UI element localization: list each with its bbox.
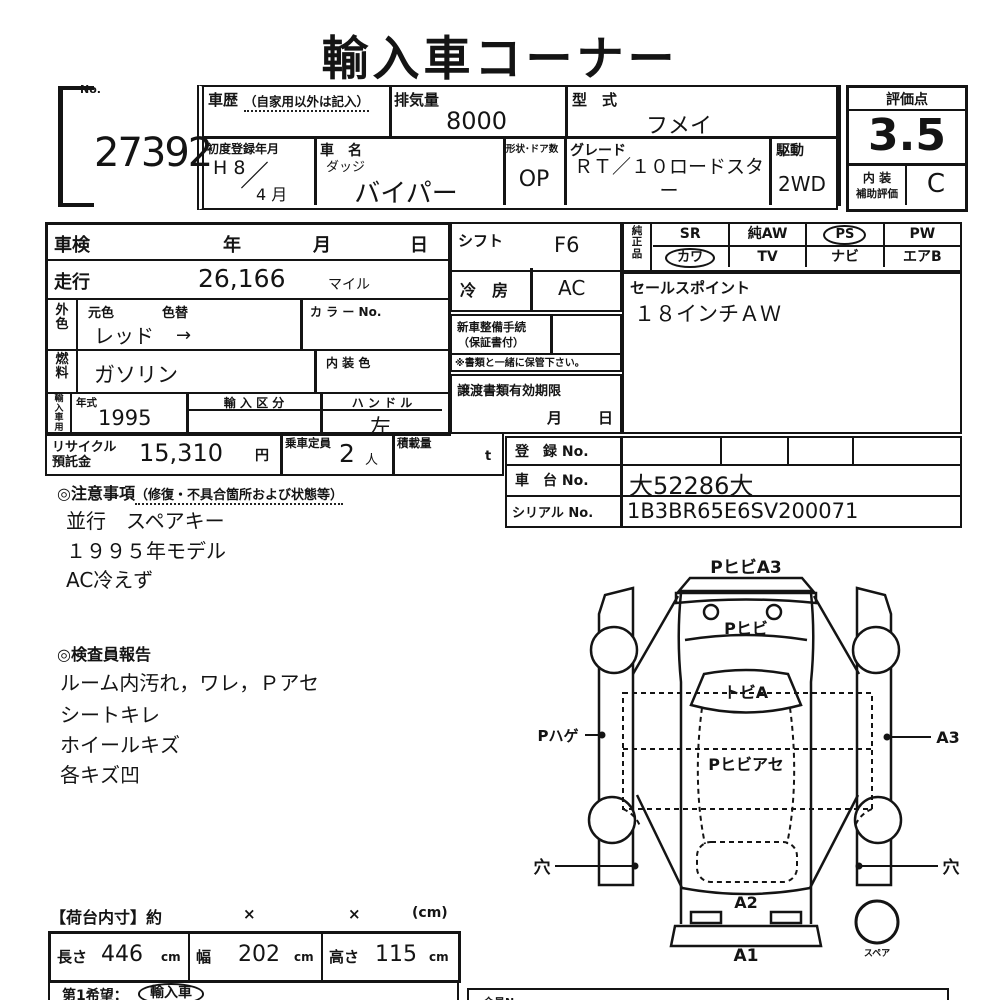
pointer-dot — [632, 863, 639, 870]
capacity-label: 乗車定員 — [285, 435, 331, 451]
original-color-label: 元色 — [88, 302, 114, 321]
recycle-label: 預託金 — [52, 451, 91, 470]
notes-heading-note: （修復・不具合箇所および状態等） — [135, 488, 343, 505]
cargo-height-label: 高さ — [329, 946, 359, 967]
history-label: 車歴 — [208, 89, 238, 110]
cabin-dashed-line — [698, 708, 705, 844]
damage-label-right-door: A3 — [936, 728, 960, 747]
note-item: 並行 スペアキー — [66, 505, 225, 534]
taillight — [691, 912, 721, 923]
sales-point-value: １８インチＡＷ — [634, 298, 781, 328]
shape-doors-value: OP — [504, 167, 564, 192]
divider-line — [300, 300, 303, 349]
pointer-dot — [856, 863, 863, 870]
pointer-dot — [599, 732, 606, 739]
registration-no-label: 登 録 No. — [515, 441, 589, 461]
front-fender-line — [814, 596, 859, 674]
shift-label: シフト — [458, 230, 503, 251]
front-bumper-band — [676, 593, 816, 603]
color-no-label: カ ラ ー No. — [310, 303, 381, 320]
warranty-label: （保証書付） — [458, 334, 524, 350]
equipment-item-kawa-circled: カワ — [665, 248, 715, 268]
lot-no-label: No. — [80, 83, 101, 96]
mileage-label: 走行 — [54, 268, 90, 294]
equipment-item-ps-circled: PS — [823, 225, 866, 245]
chassis-no-label: 車 台 No. — [515, 470, 589, 490]
sales-point-box: セールスポイント １８インチＡＷ — [622, 272, 962, 434]
equipment-item-airbag: エアB — [885, 247, 960, 268]
equipment-item-aw: 純AW — [730, 224, 807, 245]
cargo-width-value: 202 — [238, 942, 280, 967]
score-label: 評価点 — [849, 88, 965, 111]
keep-note-box: ※書類と一緒に保管下さい。 — [450, 351, 622, 372]
body-outline-left — [679, 593, 681, 924]
aircon-box: 冷 房 AC — [450, 268, 622, 312]
new-car-procedure-label: 新車整備手続 — [457, 319, 526, 335]
equipment-item-pw: PW — [885, 224, 960, 245]
month-label: 月 — [313, 231, 331, 257]
cargo-width-unit: cm — [294, 950, 314, 964]
front-right-wheel — [853, 627, 899, 673]
model-year-label: 年式 — [76, 395, 97, 410]
rear-bumper-shape — [671, 926, 821, 946]
rear-fender-line — [810, 795, 858, 888]
fuel-value: ガソリン — [94, 359, 178, 389]
recycle-box: リサイクル 預託金 15,310 円 乗車定員 2 人 積載量 t — [45, 432, 504, 476]
handle-label: ハ ン ド ル — [322, 394, 442, 411]
model-code-label: 型 式 — [572, 89, 617, 110]
inspector-item: シートキレ — [60, 699, 160, 728]
equipment-grid: 純正品 SR 純AW PS PW カワ TV ナビ エアB — [622, 222, 962, 272]
history-note: （自家用以外は記入） — [244, 91, 369, 112]
inspector-item: ルーム内汚れ，ワレ，Ｐアセ — [60, 667, 319, 696]
divider-line — [530, 268, 533, 310]
displacement-value: 8000 — [394, 107, 559, 135]
registration-table: 登 録 No. 車 台 No. 大52286大 シリアル No. 1B3BR65… — [505, 436, 962, 528]
cargo-height-value: 115 — [375, 942, 417, 967]
divider-line — [389, 87, 392, 136]
divider-line — [852, 438, 854, 464]
member-no-box: 会員No — [467, 988, 949, 1000]
transfer-day-label: 日 — [598, 407, 613, 428]
interior-color-label: 内 装 色 — [326, 354, 370, 371]
damage-label-right-hole: 穴 — [943, 857, 960, 878]
load-unit: t — [485, 449, 491, 464]
score-value: 3.5 — [849, 111, 965, 166]
interior-grade-label: 内 装 — [849, 169, 905, 186]
damage-label-left-door: Pハゲ — [538, 727, 579, 745]
serial-no-label: シリアル No. — [512, 502, 593, 521]
color-change-label: 色替 — [162, 302, 188, 321]
day-label: 日 — [410, 231, 428, 257]
vehicle-detail-table: 車検 年 月 日 走行 26,166 マイル 外色 元色 色替 レッド → カ … — [45, 222, 451, 436]
shaken-label: 車検 — [54, 231, 90, 257]
first-choice-box: 第1希望： 輸入車 — [48, 980, 459, 1000]
sales-point-label: セールスポイント — [630, 277, 750, 298]
equipment-item-navi: ナビ — [807, 247, 884, 268]
page-title: 輸入車コーナー — [0, 20, 1000, 89]
capacity-value: 2 — [339, 439, 355, 468]
pointer-dot — [884, 734, 891, 741]
damage-label-left-hole: 穴 — [534, 857, 551, 878]
notes-heading: ◎注意事項（修復・不具合箇所および状態等） — [57, 480, 343, 504]
year-label: 年 — [223, 231, 241, 257]
first-reg-month: 4 月 — [256, 181, 287, 205]
lot-bracket-line — [58, 86, 63, 207]
color-value: レッド — [94, 320, 154, 349]
fuel-group-label: 燃料 — [55, 353, 69, 381]
inspector-item: ホイールキズ — [60, 729, 180, 758]
member-no-label: 会員No — [483, 994, 522, 1000]
front-left-wheel — [591, 627, 637, 673]
divider-line — [392, 434, 395, 474]
drive-value: 2WD — [770, 172, 834, 196]
new-car-procedure-box: 新車整備手続 （保証書付） — [450, 314, 622, 355]
lot-bracket-line — [58, 203, 94, 207]
rear-left-wheel — [589, 797, 635, 843]
note-item: １９９５年モデル — [66, 535, 226, 564]
load-label: 積載量 — [397, 435, 432, 451]
cargo-heading: 【荷台内寸】約 — [50, 904, 162, 928]
chassis-no-value: 大52286大 — [629, 466, 753, 501]
divider-line — [787, 438, 789, 464]
first-choice-label: 第1希望： — [62, 985, 128, 1000]
model-code-value: フメイ — [584, 108, 774, 140]
floor-dashed-rect — [623, 693, 872, 809]
score-box: 評価点 3.5 内 装 補助評価 C — [846, 85, 968, 212]
import-class-label: 輸 入 区 分 — [188, 394, 320, 411]
note-item: AC冷えず — [66, 564, 153, 593]
rear-window-dashed — [697, 842, 797, 882]
divider-line — [720, 438, 722, 464]
notes-heading-label: ◎注意事項 — [57, 484, 135, 503]
damage-label-roof: Pヒビアセ — [708, 755, 783, 774]
cargo-height-unit: cm — [429, 950, 449, 964]
exterior-color-group-label: 外色 — [55, 304, 69, 332]
auction-sheet: 輸入車コーナー No. 27392 車歴 （自家用以外は記入） 排気量 8000… — [0, 0, 1000, 1000]
front-fender-line — [633, 596, 678, 674]
equipment-item-tv: TV — [730, 247, 807, 268]
cargo-length-value: 446 — [101, 942, 143, 967]
transfer-docs-box: 譲渡書類有効期限 月 日 — [450, 374, 622, 434]
headlight — [767, 605, 781, 619]
shape-doors-label: 形状･ドア数 — [506, 141, 558, 155]
divider-line — [314, 351, 317, 392]
cargo-width-label: 幅 — [196, 946, 211, 967]
damage-label-rear-bumper: A1 — [734, 946, 759, 964]
cargo-x: × — [348, 905, 361, 923]
front-bumper-shape — [679, 578, 813, 591]
damage-label-front-bumper: PヒビA3 — [710, 558, 781, 578]
cargo-length-label: 長さ — [57, 946, 87, 967]
recycle-value: 15,310 — [139, 439, 223, 467]
cargo-unit-note: (cm) — [412, 905, 448, 921]
equipment-item-sr: SR — [653, 224, 730, 245]
inspector-heading: ◎検査員報告 — [57, 641, 151, 665]
transfer-docs-label: 譲渡書類有効期限 — [457, 380, 561, 399]
damage-label-windshield: トビA — [724, 683, 769, 702]
divider-line — [280, 434, 283, 474]
car-damage-diagram: PヒビA3 Pヒビ トビA Pヒビアセ Pハゲ A3 穴 穴 A2 A1 スペア — [525, 552, 970, 964]
divider-line — [565, 87, 568, 136]
divider-line — [550, 316, 553, 353]
lot-number: 27392 — [94, 130, 211, 176]
transfer-month-label: 月 — [547, 407, 562, 428]
shift-value: F6 — [554, 233, 579, 257]
model-year-value: 1995 — [98, 406, 151, 430]
taillight — [771, 912, 801, 923]
aircon-label: 冷 房 — [460, 277, 508, 301]
grade-value: ＲＴ／１０ロードスター — [574, 155, 764, 203]
shift-box: シフト F6 — [450, 222, 622, 272]
mileage-unit: マイル — [328, 274, 370, 294]
spare-tire-label: スペア — [864, 948, 890, 959]
keep-note: ※書類と一緒に保管下さい。 — [455, 354, 585, 369]
mileage-value: 26,166 — [198, 264, 285, 293]
capacity-unit: 人 — [365, 449, 378, 468]
color-change-arrow: → — [176, 325, 191, 346]
spare-tire-circle — [856, 901, 898, 943]
first-choice-value-circled: 輸入車 — [138, 983, 204, 1000]
divider-line — [838, 85, 841, 206]
headlight — [704, 605, 718, 619]
interior-grade-label: 補助評価 — [849, 186, 905, 201]
divider-line — [564, 139, 567, 205]
damage-label-front-panel: Pヒビ — [724, 619, 768, 638]
vehicle-header-table: 車歴 （自家用以外は記入） 排気量 8000 型 式 フメイ 初度登録年月 H … — [197, 85, 838, 210]
recycle-unit: 円 — [255, 445, 269, 465]
rear-right-wheel — [855, 797, 901, 843]
cargo-table: 長さ 446 cm 幅 202 cm 高さ 115 cm — [48, 931, 461, 983]
equipment-group-label: 純正品 — [631, 226, 642, 260]
inspector-item: 各キズ凹 — [60, 759, 140, 788]
body-outline-right — [811, 593, 813, 924]
interior-grade-value: C — [907, 166, 965, 205]
cabin-dashed-line — [787, 708, 794, 844]
damage-label-rear-panel: A2 — [734, 893, 758, 912]
cargo-length-unit: cm — [161, 950, 181, 964]
serial-no-value: 1B3BR65E6SV200071 — [627, 499, 858, 523]
import-group-label: 輸入車用 — [54, 395, 63, 434]
aircon-value: AC — [558, 276, 585, 300]
cargo-x: × — [243, 905, 256, 923]
drive-label: 駆動 — [776, 140, 804, 160]
car-name-value: バイパー — [316, 173, 496, 210]
